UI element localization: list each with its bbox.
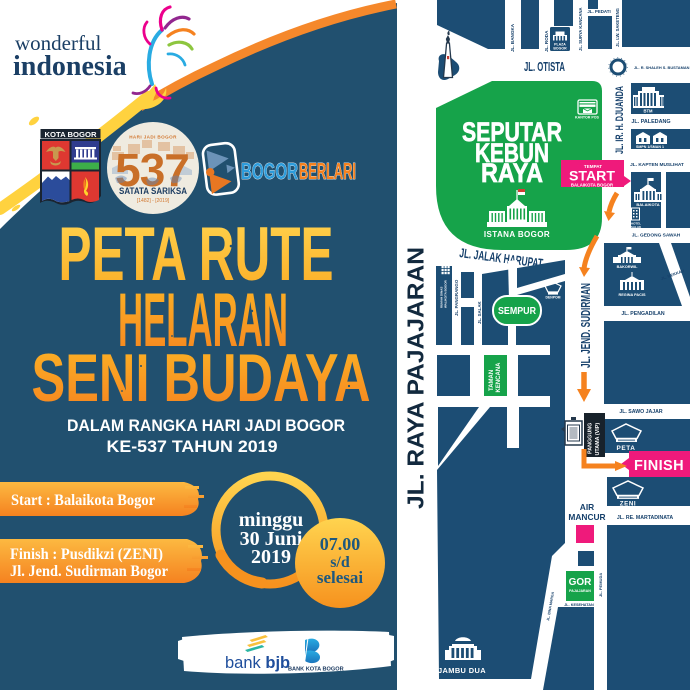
svg-text:bank bjb: bank bjb (225, 654, 290, 672)
svg-text:GOR: GOR (569, 577, 593, 588)
svg-text:PANGGUNG: PANGGUNG (588, 423, 594, 454)
svg-text:JL. BANGKA: JL. BANGKA (510, 23, 515, 52)
svg-text:SENI BUDAYA: SENI BUDAYA (32, 340, 371, 416)
svg-text:JL. IR. H. DJUANDA: JL. IR. H. DJUANDA (614, 86, 626, 154)
svg-text:PAJAJARAN: PAJAJARAN (569, 589, 591, 593)
svg-text:[1482] - [2019]: [1482] - [2019] (137, 198, 170, 204)
svg-text:SALAK: SALAK (631, 225, 642, 229)
svg-text:BALAIKOTA: BALAIKOTA (636, 202, 659, 207)
svg-text:indonesia: indonesia (13, 51, 127, 82)
svg-text:JL. GEDONG SAWAH: JL. GEDONG SAWAH (632, 233, 681, 239)
svg-text:Finish : Pusdikzi (ZENI): Finish : Pusdikzi (ZENI) (10, 546, 163, 563)
svg-text:07.00: 07.00 (320, 534, 361, 554)
svg-text:FINISH: FINISH (634, 458, 684, 474)
svg-text:BTM: BTM (643, 109, 653, 114)
svg-text:UTAMA (VIP): UTAMA (VIP) (595, 423, 601, 456)
svg-text:JL. RE. MARTADINATA: JL. RE. MARTADINATA (617, 515, 673, 521)
svg-text:HARI JADI BOGOR: HARI JADI BOGOR (129, 135, 177, 140)
svg-text:ZENI: ZENI (620, 501, 637, 508)
svg-text:JL. PALEDANG: JL. PALEDANG (631, 119, 670, 125)
svg-text:JL. PANGRANGO: JL. PANGRANGO (454, 279, 459, 316)
svg-text:selesai: selesai (317, 568, 364, 587)
svg-text:JL. R. SHALEH S. BUSTAMAN: JL. R. SHALEH S. BUSTAMAN (634, 65, 690, 70)
svg-text:BOGOR: BOGOR (553, 47, 567, 51)
svg-text:JL. PENGADILAN: JL. PENGADILAN (621, 311, 664, 317)
svg-text:SEMPUR: SEMPUR (498, 306, 536, 317)
svg-text:JL. SAWO JAJAR: JL. SAWO JAJAR (619, 409, 662, 415)
svg-text:MANCUR: MANCUR (568, 512, 605, 522)
svg-text:SMPN 1/SMAN 1: SMPN 1/SMAN 1 (636, 145, 664, 149)
svg-text:JL. OTISTA: JL. OTISTA (524, 60, 565, 74)
svg-text:DALAM RANGKA HARI JADI BOGOR: DALAM RANGKA HARI JADI BOGOR (67, 416, 345, 435)
svg-text:JL. SALAK: JL. SALAK (477, 300, 482, 324)
svg-text:BANK KOTA BOGOR: BANK KOTA BOGOR (288, 667, 344, 673)
svg-text:BAKORWIL: BAKORWIL (617, 265, 638, 269)
svg-text:JL. PEMUDA: JL. PEMUDA (598, 573, 603, 597)
svg-text:JL. RAYA PAJAJARAN: JL. RAYA PAJAJARAN (403, 247, 429, 509)
svg-text:ISTANA BOGOR: ISTANA BOGOR (484, 230, 550, 239)
svg-text:JL. KESEHATAN: JL. KESEHATAN (564, 603, 594, 607)
svg-text:KE-537 TAHUN 2019: KE-537 TAHUN 2019 (107, 437, 278, 456)
svg-text:JL. PEDATI: JL. PEDATI (587, 9, 610, 14)
svg-text:REGINA PACIS: REGINA PACIS (618, 293, 645, 297)
svg-text:2019: 2019 (251, 546, 291, 568)
svg-text:BALAIKOTA BOGOR: BALAIKOTA BOGOR (571, 183, 614, 188)
svg-text:SATATA SARIKSA: SATATA SARIKSA (119, 186, 187, 196)
svg-text:JAMBU DUA: JAMBU DUA (438, 666, 486, 675)
svg-text:JL. JEND. SUDIRMAN: JL. JEND. SUDIRMAN (578, 283, 593, 368)
svg-text:KENCANA: KENCANA (496, 362, 502, 393)
svg-text:JL. LW. SAKETENG: JL. LW. SAKETENG (615, 8, 620, 47)
svg-text:BOGOR: BOGOR (241, 158, 298, 184)
svg-text:DENPOM: DENPOM (546, 296, 561, 300)
svg-text:START: START (569, 168, 615, 184)
svg-text:BERLARI: BERLARI (299, 158, 356, 184)
svg-text:TAMAN: TAMAN (489, 370, 495, 391)
svg-text:Jl. Jend. Sudirman Bogor: Jl. Jend. Sudirman Bogor (10, 563, 168, 580)
svg-text:WALIKOTA BOGOR: WALIKOTA BOGOR (444, 279, 448, 308)
svg-text:AIR: AIR (580, 502, 594, 512)
svg-text:KANTOR POS: KANTOR POS (575, 116, 599, 120)
svg-text:JL. SURYA KANCANA: JL. SURYA KANCANA (578, 7, 583, 51)
svg-text:RAYA: RAYA (481, 158, 543, 188)
svg-text:KOTA BOGOR: KOTA BOGOR (45, 130, 98, 139)
svg-text:PETA: PETA (617, 445, 636, 452)
svg-text:JL. KAPTEN MUSLIHAT: JL. KAPTEN MUSLIHAT (630, 162, 684, 168)
svg-text:Start : Balaikota Bogor: Start : Balaikota Bogor (11, 492, 155, 509)
svg-text:JL. RODA: JL. RODA (544, 30, 549, 52)
